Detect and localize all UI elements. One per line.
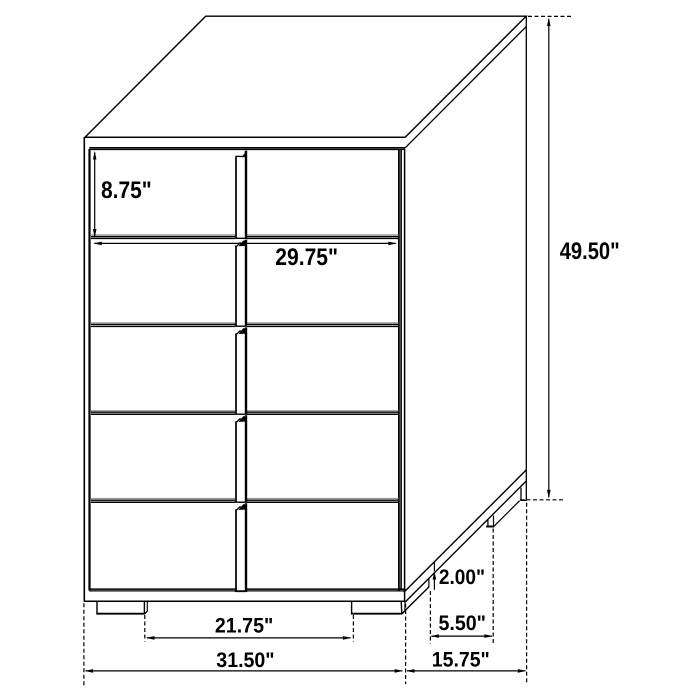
svg-text:21.75": 21.75" xyxy=(215,614,273,637)
svg-text:8.75": 8.75" xyxy=(101,177,152,204)
svg-text:49.50": 49.50" xyxy=(560,238,620,265)
svg-text:2.00": 2.00" xyxy=(439,566,485,589)
svg-text:29.75": 29.75" xyxy=(275,244,338,271)
svg-text:31.50": 31.50" xyxy=(216,649,274,672)
svg-text:15.75": 15.75" xyxy=(432,648,490,671)
svg-text:5.50": 5.50" xyxy=(439,612,487,635)
